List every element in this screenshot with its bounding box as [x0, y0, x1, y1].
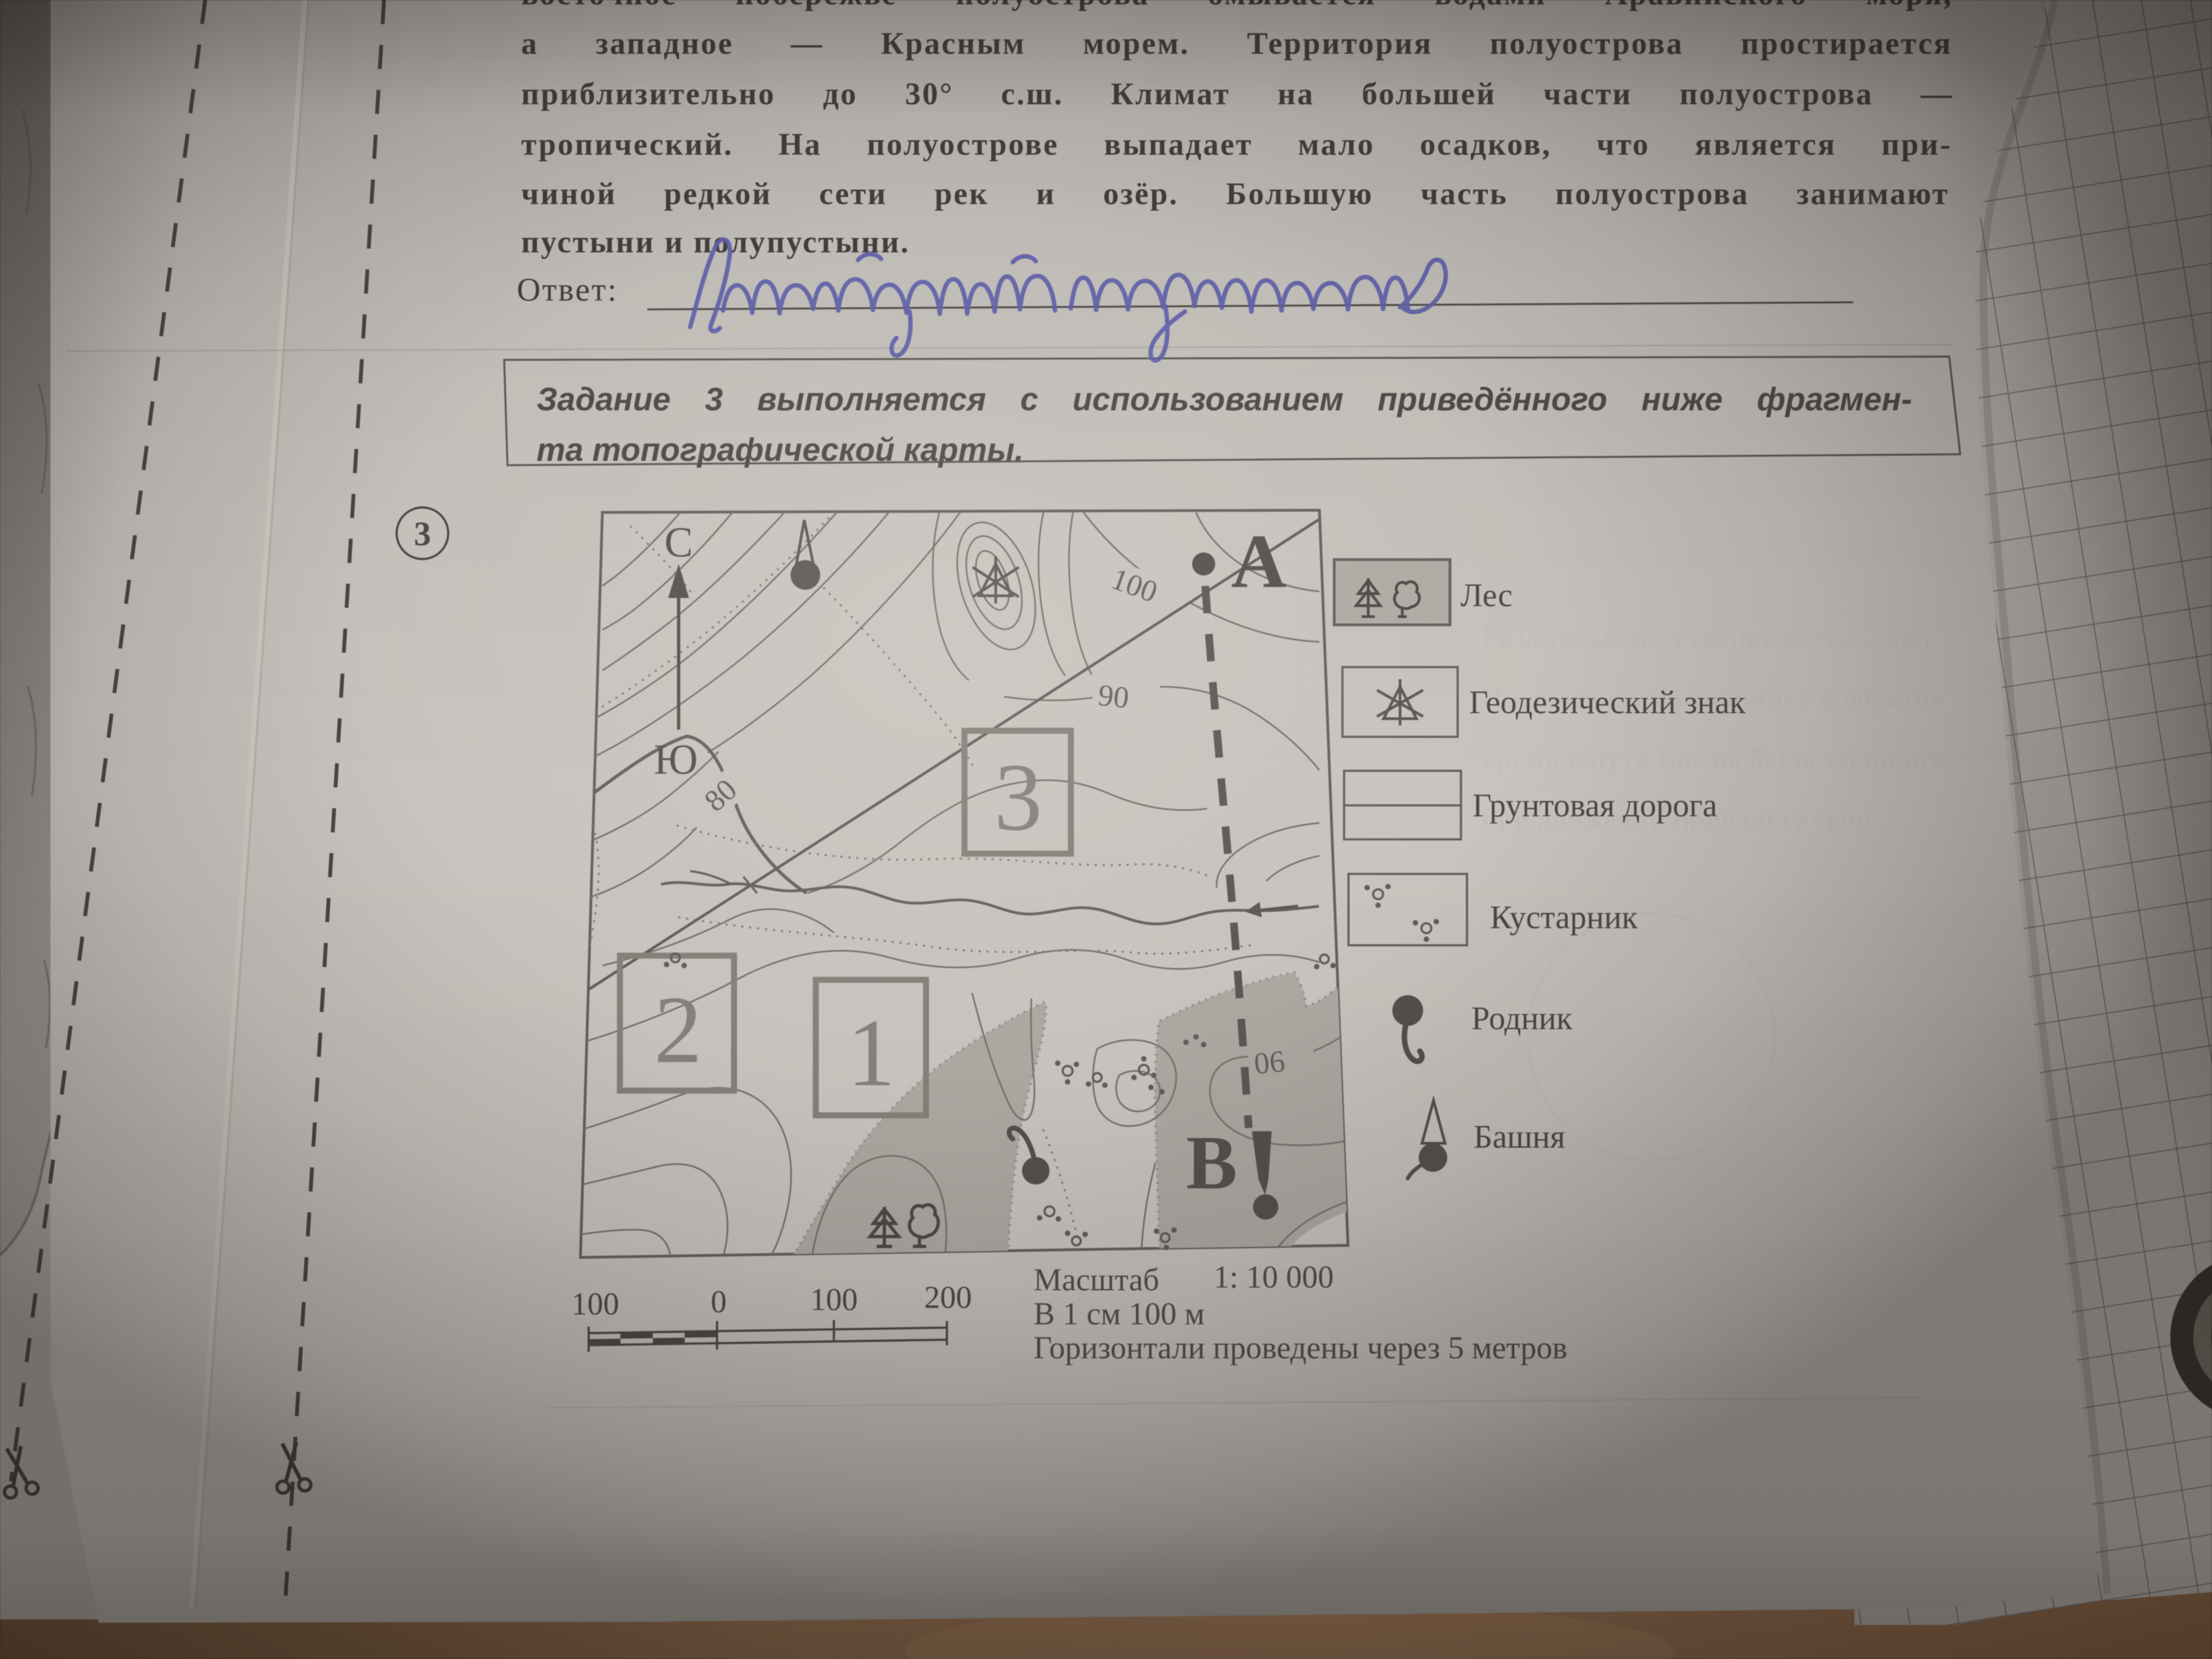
- svg-text:приблизительно до 30° с.ш. Кли: приблизительно до 30° с.ш. Климат на бол…: [521, 77, 1954, 111]
- svg-text:Лес: Лес: [1460, 577, 1513, 613]
- svg-text:С: С: [664, 518, 693, 566]
- svg-text:1: 1: [847, 1000, 895, 1107]
- svg-text:Горизонтали проведены через 5: Горизонтали проведены через 5 метров: [1034, 1330, 1567, 1365]
- svg-text:тропический. На полуострове вы: тропический. На полуострове выпадает мал…: [521, 127, 1952, 162]
- svg-text:Ю: Ю: [654, 735, 698, 783]
- svg-text:2: 2: [654, 977, 702, 1084]
- svg-text:время в пути можно было законч: время в пути можно было закончить: [1481, 743, 1957, 775]
- svg-text:90: 90: [1097, 678, 1131, 715]
- svg-text:Различные расстояния составляю: Различные расстояния составляют: [1481, 623, 1936, 654]
- svg-text:Задание 3 выполняется с исполь: Задание 3 выполняется с использованием п…: [537, 381, 1912, 417]
- svg-text:Родник: Родник: [1471, 1000, 1573, 1036]
- svg-text:Масштаб: Масштаб: [1034, 1262, 1159, 1297]
- svg-text:В 1 см 100 м: В 1 см 100 м: [1034, 1296, 1205, 1331]
- svg-text:3: 3: [994, 744, 1042, 851]
- svg-text:100: 100: [810, 1282, 858, 1317]
- svg-text:при движении прибавьте свои: при движении прибавьте свои: [1481, 804, 1872, 835]
- svg-text:восточное побережье полуостров: восточное побережье полуострова омываетс…: [521, 0, 1953, 12]
- svg-text:чиной редкой сети рек и озёр.: чиной редкой сети рек и озёр. Большую ча…: [521, 177, 1949, 211]
- svg-text:Ответ:: Ответ:: [517, 272, 618, 308]
- svg-text:пустыни и полупустыни.: пустыни и полупустыни.: [521, 225, 910, 259]
- svg-text:та топографической карты.: та топографической карты.: [537, 432, 1024, 468]
- svg-text:06: 06: [1252, 1044, 1286, 1081]
- svg-text:А: А: [1231, 519, 1286, 604]
- svg-text:1: 10 000: 1: 10 000: [1214, 1259, 1334, 1295]
- svg-text:На прогулку по тропинке и обра: На прогулку по тропинке и обратно: [1481, 683, 1945, 714]
- svg-text:Башня: Башня: [1474, 1119, 1565, 1155]
- svg-text:100: 100: [572, 1286, 619, 1322]
- svg-text:а западное — Красным морем. Те: а западное — Красным морем. Территория п…: [521, 26, 1953, 61]
- svg-text:В: В: [1186, 1120, 1237, 1205]
- svg-text:3: 3: [414, 516, 431, 553]
- svg-text:200: 200: [924, 1279, 972, 1315]
- svg-text:0: 0: [711, 1284, 727, 1319]
